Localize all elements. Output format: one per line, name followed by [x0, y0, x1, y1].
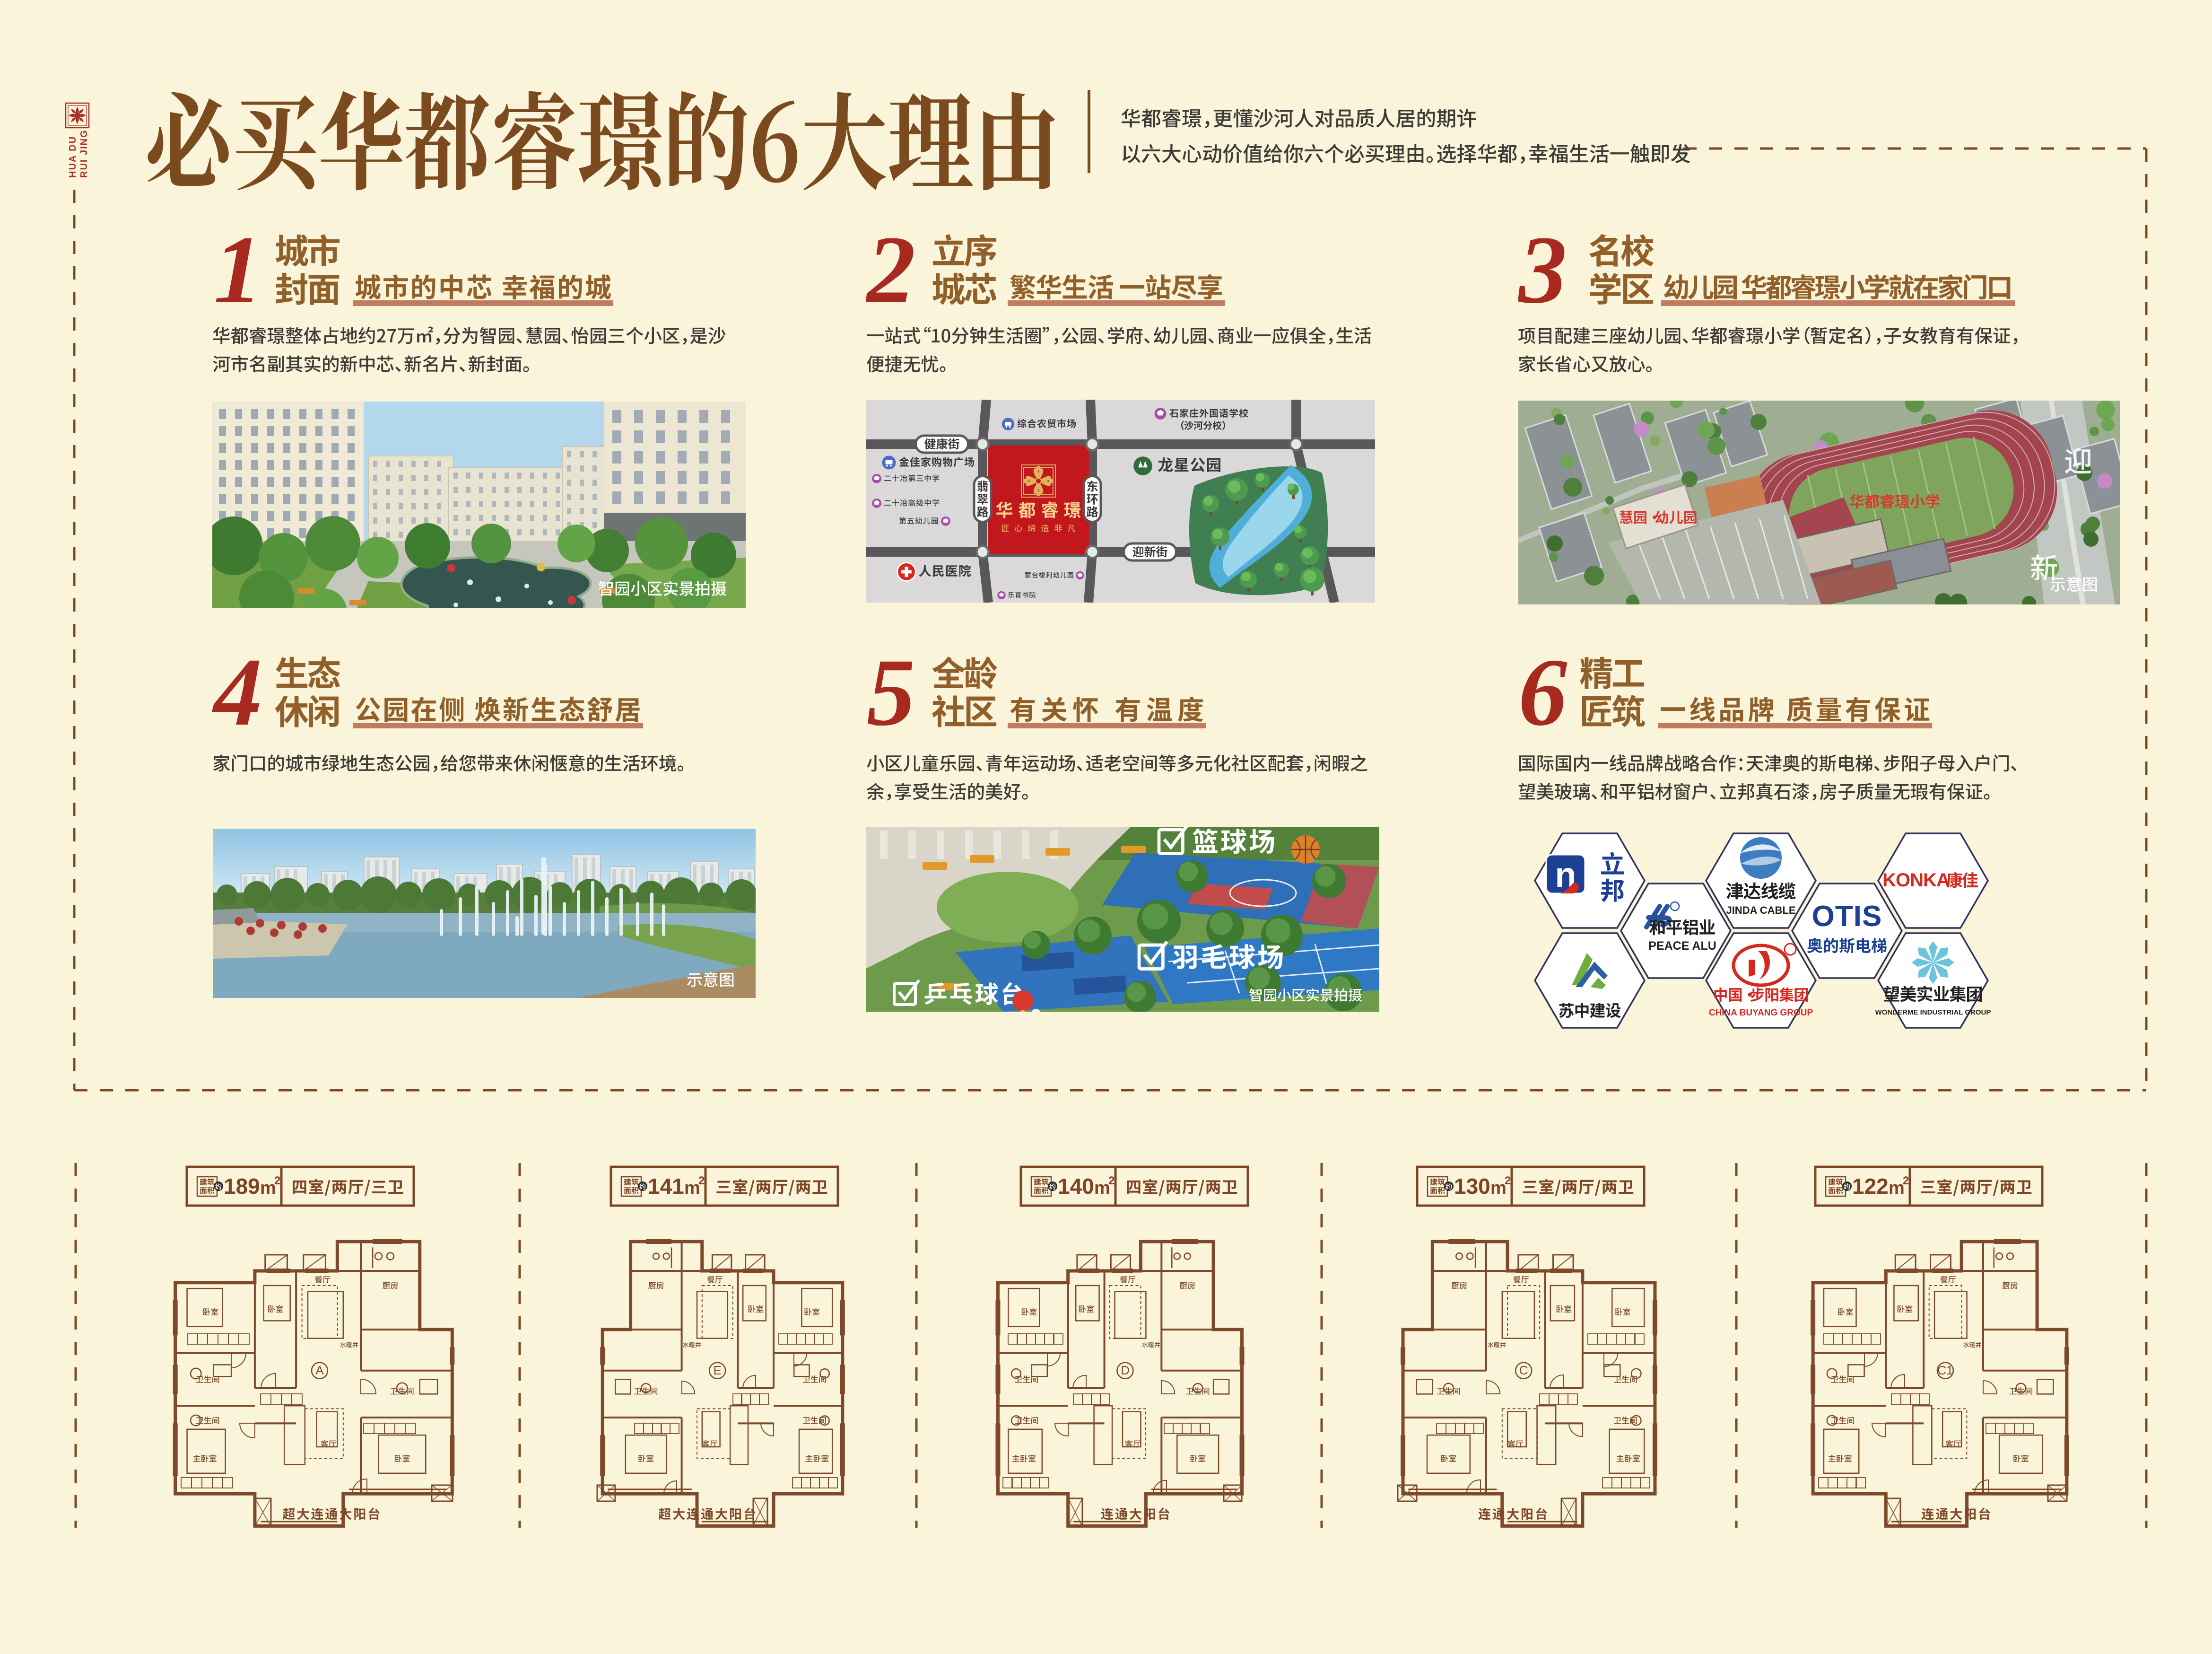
svg-text:2: 2 [1108, 1174, 1115, 1187]
svg-text:130: 130 [1454, 1174, 1490, 1199]
svg-text:m: m [1094, 1178, 1110, 1198]
svg-text:HUA DU: HUA DU [68, 136, 78, 178]
svg-text:PEACE ALU: PEACE ALU [1648, 939, 1716, 953]
svg-text:2: 2 [274, 1174, 280, 1187]
svg-text:m: m [1490, 1178, 1507, 1198]
svg-text:CHINA BUYANG GROUP: CHINA BUYANG GROUP [1709, 1008, 1813, 1018]
svg-text:RUI JING: RUI JING [79, 129, 89, 178]
svg-text:2: 2 [698, 1174, 705, 1187]
svg-text:C1: C1 [1937, 1363, 1953, 1377]
svg-text:140: 140 [1058, 1174, 1094, 1199]
svg-text:m: m [260, 1178, 276, 1198]
svg-text:E: E [714, 1363, 722, 1377]
svg-text:D: D [1121, 1363, 1130, 1377]
svg-text:141: 141 [648, 1174, 684, 1199]
svg-text:189: 189 [224, 1174, 260, 1199]
svg-text:m: m [1889, 1178, 1905, 1198]
svg-text:m: m [684, 1178, 700, 1198]
svg-text:WONDERME INDUSTRIAL GROUP: WONDERME INDUSTRIAL GROUP [1875, 1008, 1991, 1016]
svg-text:OTIS: OTIS [1812, 900, 1882, 933]
svg-text:C: C [1519, 1363, 1528, 1377]
svg-text:2: 2 [1903, 1174, 1909, 1187]
svg-text:2: 2 [1505, 1174, 1511, 1187]
svg-text:KONKA: KONKA [1882, 870, 1950, 891]
svg-text:122: 122 [1852, 1174, 1889, 1199]
svg-text:JINDA CABLE: JINDA CABLE [1726, 904, 1795, 916]
svg-text:A: A [315, 1363, 324, 1377]
